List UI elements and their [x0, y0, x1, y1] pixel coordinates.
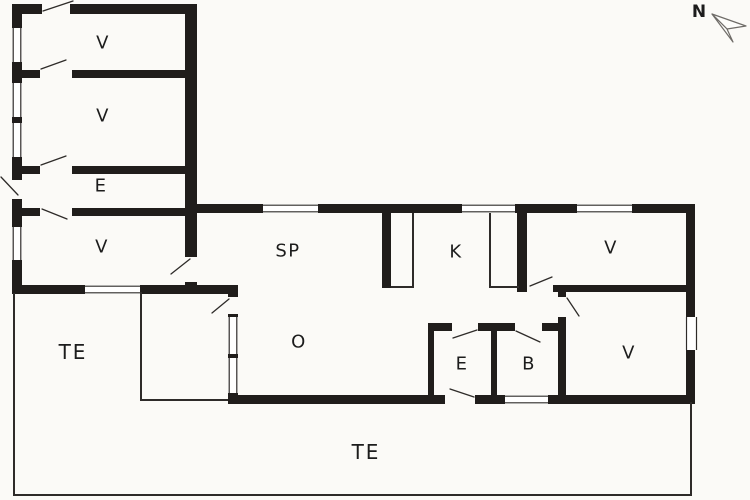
- room-label-v-top-3: V: [95, 237, 109, 258]
- terrace-outlines: [13, 292, 692, 496]
- room-label-v-top-1: V: [96, 33, 110, 54]
- room-label-o: O: [291, 332, 307, 353]
- floor-plan: V V E V SP K V O E B V TE TE N: [0, 0, 750, 500]
- floor-plan-drawing: [0, 0, 750, 500]
- room-label-v-right-top: V: [604, 238, 618, 259]
- terrace-label-west: TE: [59, 340, 88, 364]
- room-label-v-right-bottom: V: [622, 343, 636, 364]
- room-label-e-annex: E: [95, 176, 108, 197]
- room-label-sp: SP: [275, 241, 300, 262]
- room-label-k: K: [449, 242, 462, 263]
- room-label-e-small: E: [456, 354, 469, 375]
- interior-walls: [22, 70, 688, 400]
- room-label-b: B: [522, 354, 536, 375]
- room-label-v-top-2: V: [96, 106, 110, 127]
- north-arrow-icon: [712, 14, 746, 42]
- terrace-label-south: TE: [352, 440, 381, 464]
- north-label: N: [692, 2, 706, 22]
